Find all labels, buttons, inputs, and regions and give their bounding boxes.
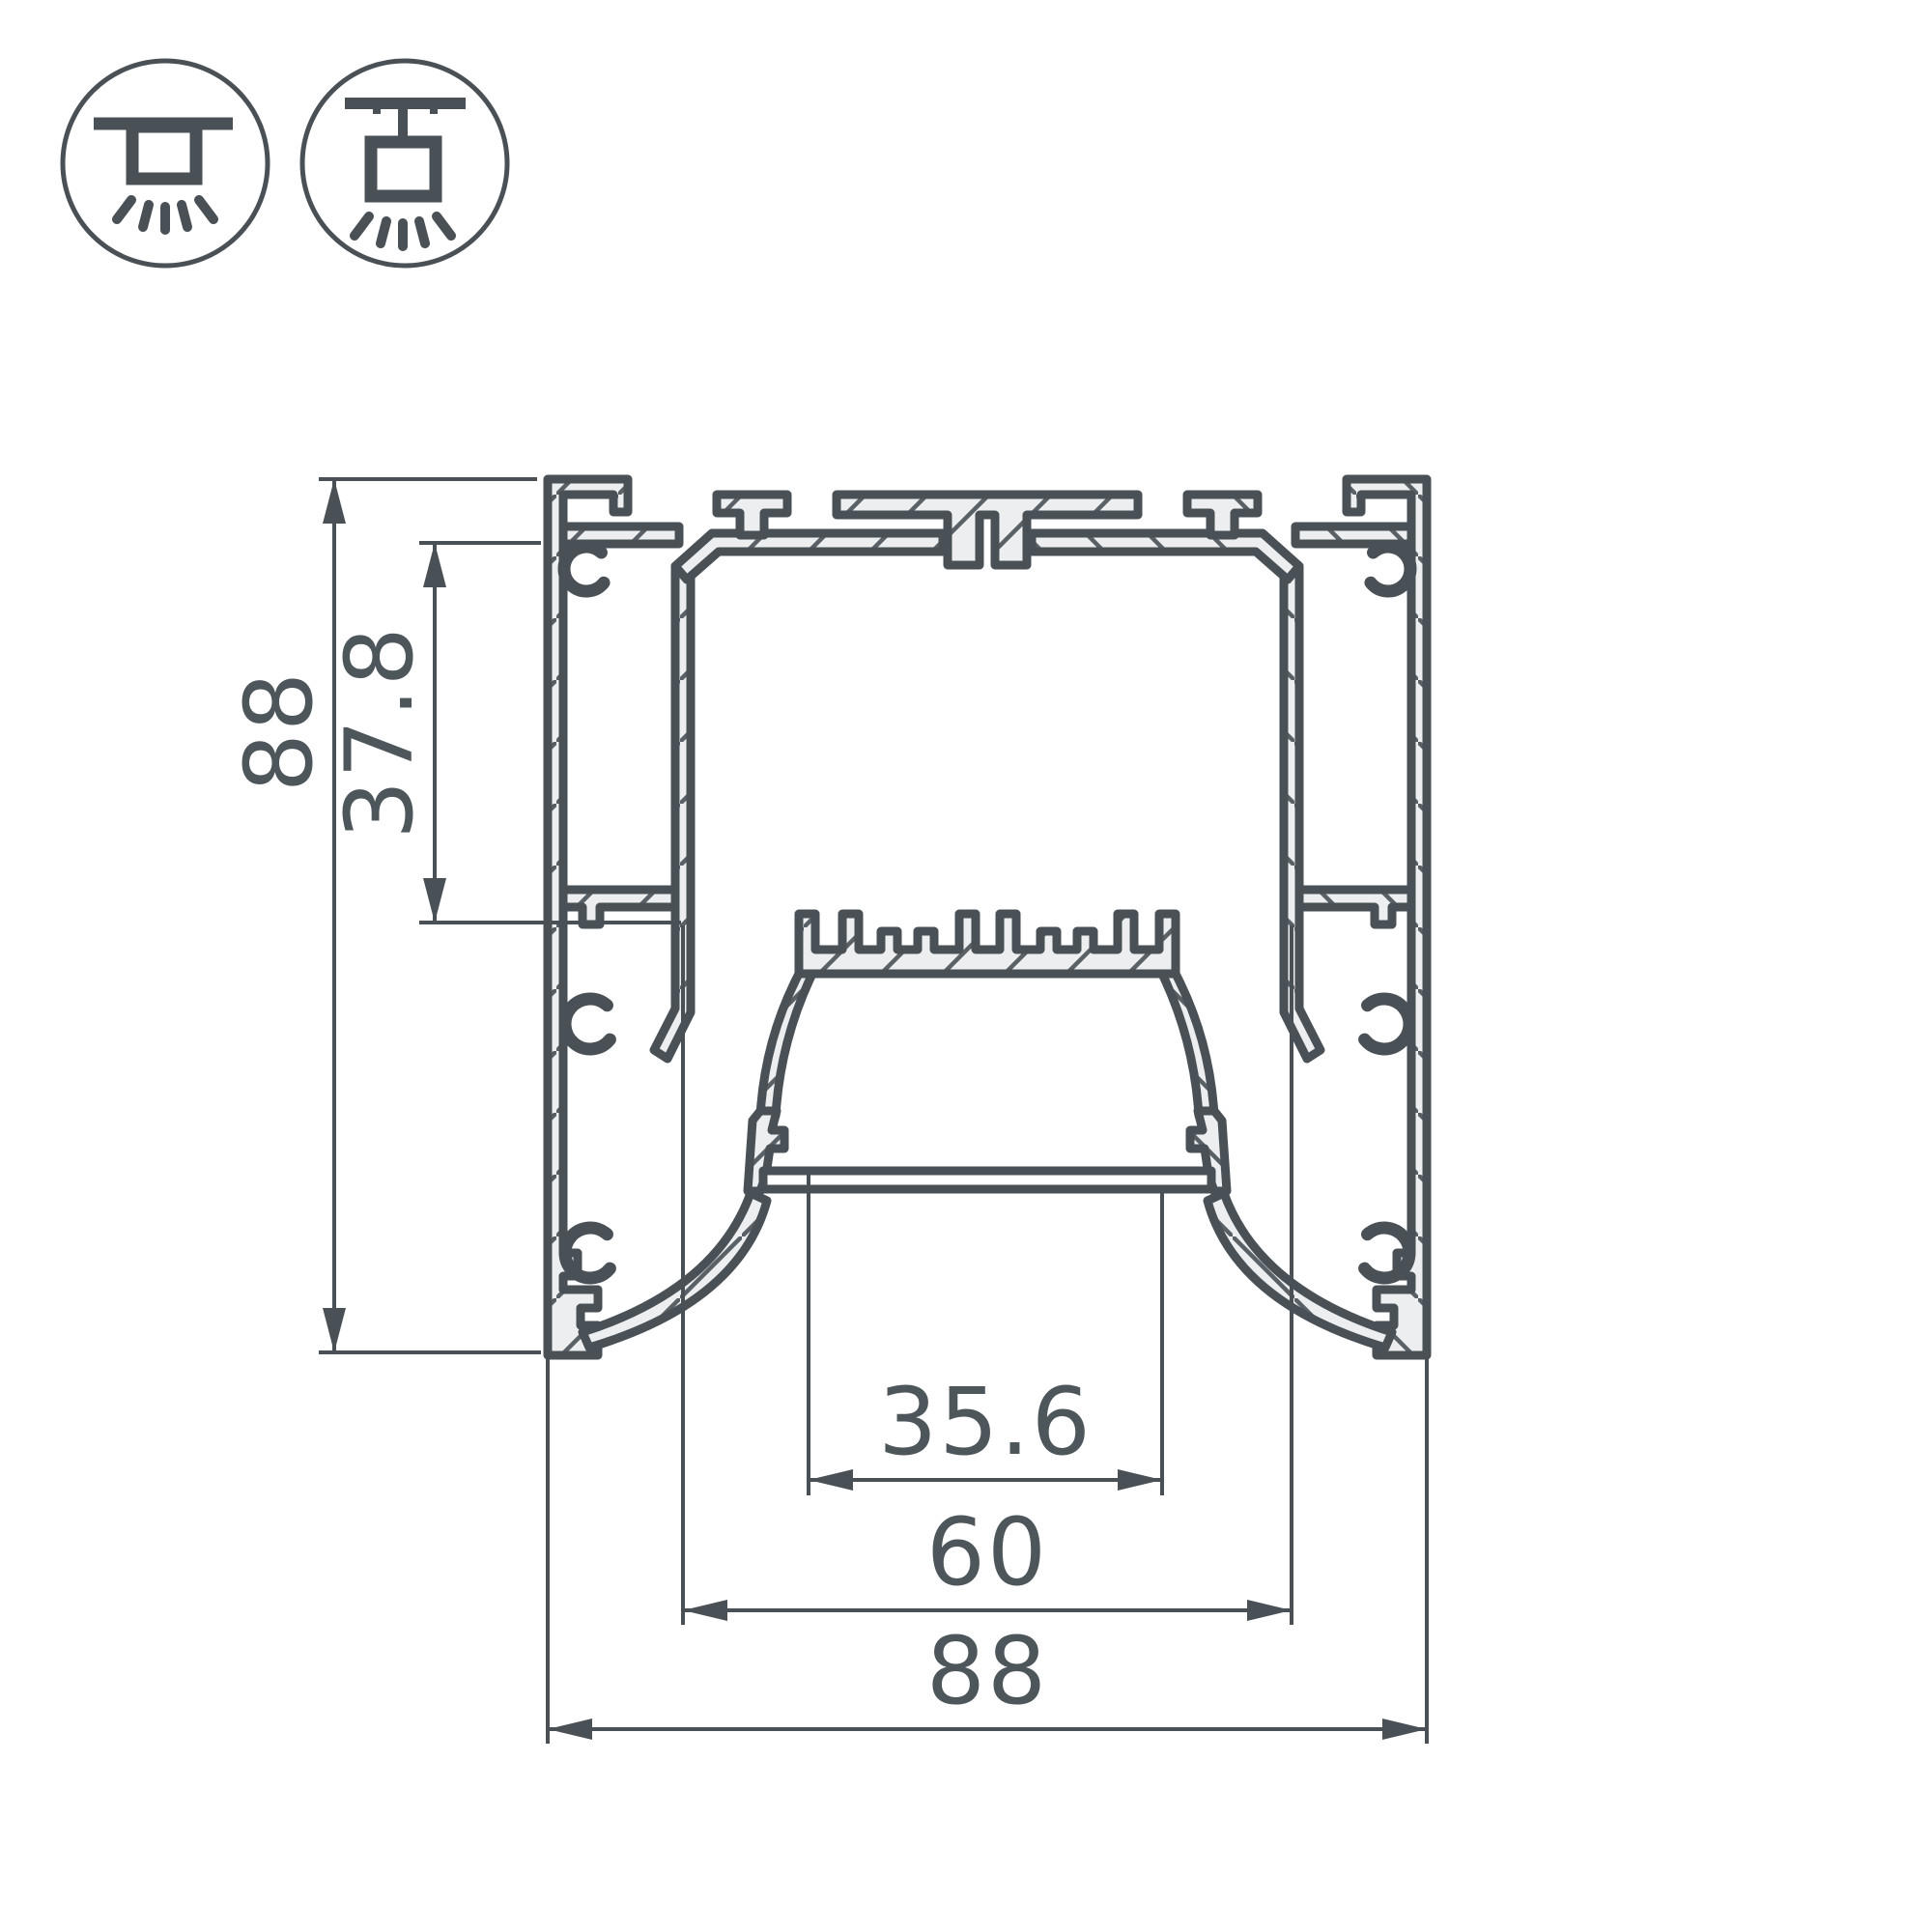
dim-top-channel-depth: 37.8 [326, 543, 681, 923]
surface-mount-icon [63, 61, 268, 266]
light-rays [355, 216, 451, 246]
profile-left-half [548, 479, 943, 1355]
profile-technical-drawing: 88 37.8 35.6 60 [0, 0, 1932, 1932]
dim-label-top-channel-depth: 37.8 [326, 625, 434, 839]
profile-right-half [1032, 479, 1427, 1355]
fixture-box [132, 127, 196, 179]
heatsink-fin-plate [799, 914, 1176, 974]
light-rays [117, 200, 213, 230]
dim-lens-window-width: 35.6 [809, 1174, 1162, 1495]
fixture-box [371, 142, 436, 196]
dim-label-inner-chamber-width: 60 [926, 1498, 1048, 1606]
diffuser-lens [763, 1171, 1211, 1189]
icon-circle [63, 61, 268, 266]
dim-label-overall-width: 88 [926, 1617, 1048, 1725]
dimension-annotations: 88 37.8 35.6 60 [225, 479, 1427, 1744]
profile-cross-section [548, 479, 1427, 1355]
dim-label-overall-height: 88 [225, 670, 333, 792]
drawing-canvas: 88 37.8 35.6 60 [0, 0, 1932, 1932]
dim-label-lens-window-width: 35.6 [878, 1368, 1093, 1476]
pendant-mount-icon [302, 61, 507, 266]
dim-overall-height: 88 [225, 479, 541, 1352]
